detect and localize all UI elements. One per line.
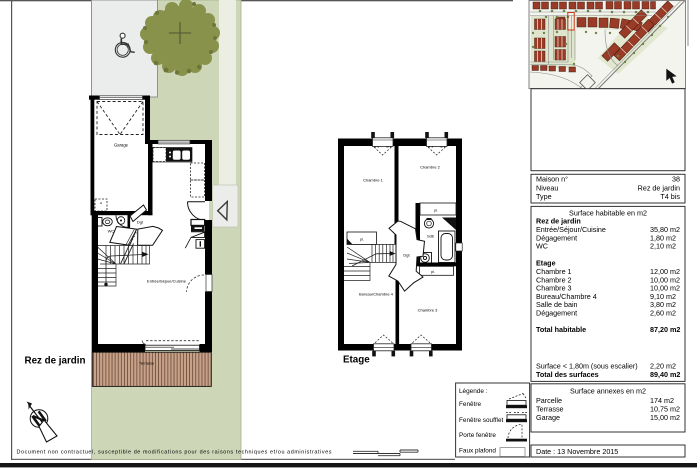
svg-text:Dgt: Dgt — [137, 220, 144, 225]
svg-text:Niveau: Niveau — [536, 183, 558, 192]
svg-text:38: 38 — [672, 175, 680, 184]
svg-text:Chambre 3: Chambre 3 — [418, 307, 439, 312]
svg-text:Faux plafond: Faux plafond — [459, 447, 496, 454]
svg-text:Chambre 2: Chambre 2 — [420, 165, 441, 170]
svg-text:2,20 m2: 2,20 m2 — [650, 361, 676, 370]
svg-text:WC: WC — [536, 242, 548, 251]
svg-text:Dégagement: Dégagement — [536, 309, 577, 318]
svg-text:H: H — [100, 201, 102, 205]
svg-text:pl.: pl. — [431, 270, 435, 274]
svg-text:pl.: pl. — [434, 208, 438, 212]
svg-text:Surface < 1,80m (sous escalier: Surface < 1,80m (sous escalier) — [536, 361, 638, 370]
svg-text:Document non contractuel, susc: Document non contractuel, susceptible de… — [17, 449, 333, 455]
svg-text:Total des surfaces: Total des surfaces — [536, 370, 599, 379]
svg-text:Rez de jardin: Rez de jardin — [638, 183, 680, 192]
svg-text:Total habitable: Total habitable — [536, 325, 586, 334]
svg-text:Fenêtre soufflet: Fenêtre soufflet — [459, 417, 504, 424]
svg-text:Porte fenêtre: Porte fenêtre — [459, 432, 496, 439]
svg-text:15,00 m2: 15,00 m2 — [650, 413, 680, 422]
svg-text:89,40 m2: 89,40 m2 — [650, 370, 680, 379]
svg-text:Fenêtre: Fenêtre — [459, 401, 481, 408]
svg-text:Bureau/Chambre 4: Bureau/Chambre 4 — [359, 292, 394, 297]
svg-text:87,20 m2: 87,20 m2 — [650, 325, 680, 334]
svg-text:Surface annexes en m2: Surface annexes en m2 — [570, 387, 646, 396]
svg-text:Entrée/Séjour/Cuisine: Entrée/Séjour/Cuisine — [147, 278, 187, 283]
svg-text:Terrasse: Terrasse — [139, 360, 155, 365]
svg-text:Type: Type — [536, 192, 552, 201]
svg-text:Garage: Garage — [114, 143, 129, 148]
svg-text:Garage: Garage — [536, 413, 560, 422]
svg-text:Etage: Etage — [343, 355, 370, 366]
svg-text:Chambre 1: Chambre 1 — [363, 178, 384, 183]
svg-text:Légende :: Légende : — [459, 388, 488, 395]
svg-text:Rez de jardin: Rez de jardin — [25, 356, 86, 367]
svg-text:T4 bis: T4 bis — [660, 192, 680, 201]
svg-text:Maison n°: Maison n° — [536, 175, 568, 184]
svg-text:pl.: pl. — [360, 238, 364, 242]
svg-text:Dgt: Dgt — [403, 253, 410, 258]
svg-text:2,60 m2: 2,60 m2 — [650, 309, 676, 318]
svg-text:Date : 13 Novembre 2015: Date : 13 Novembre 2015 — [536, 447, 618, 456]
svg-text:Sdb: Sdb — [427, 234, 435, 239]
svg-text:2,10 m2: 2,10 m2 — [650, 242, 676, 251]
